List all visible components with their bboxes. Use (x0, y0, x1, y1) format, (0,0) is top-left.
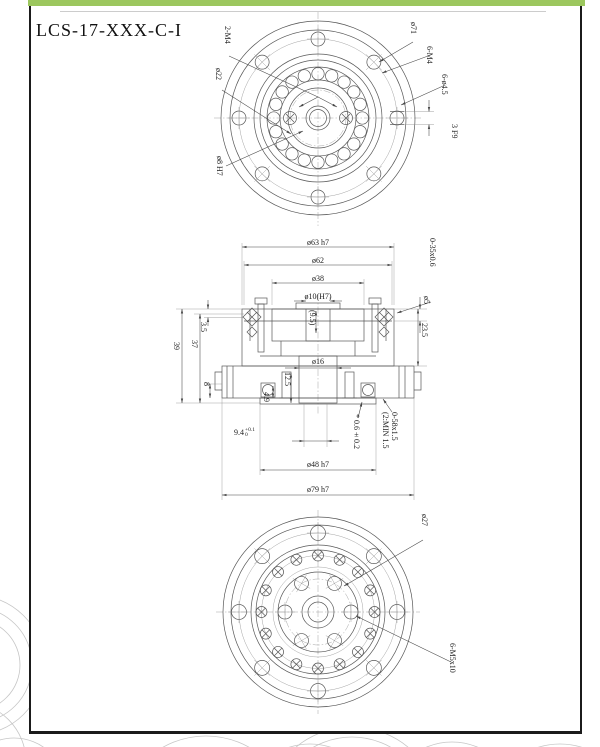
dim-label-oring-bot-1: 0-58x1.5 (390, 412, 399, 441)
dim-label-d5: ø5 (422, 296, 431, 304)
dim-label-2m4: 2-M4 (223, 26, 232, 44)
dim-label-35: 3.5 (199, 322, 208, 332)
dim-label-d48: ø48 h7 (278, 460, 358, 469)
dim-label-d8h7: ø8 H7 (215, 156, 224, 176)
dim-label-oring-top: 0-35x0.6 (428, 238, 437, 267)
dim-label-d62: ø62 (278, 256, 358, 265)
dim-label-d22: ø22 (214, 68, 223, 80)
dim-label-6d45: 6-ø4.5 (440, 74, 449, 95)
dim-label-49: 4.9 (262, 392, 271, 402)
dim-label-d10: ø10(H7) (278, 292, 358, 301)
top-view (214, 12, 443, 226)
bottom-view (216, 510, 451, 714)
dim-label-94: 9.4+0.10 (234, 428, 255, 438)
dim-label-d38: ø38 (278, 274, 358, 283)
dim-label-235: 23.5 (420, 323, 429, 337)
dim-label-3f9: 3 F9 (450, 124, 459, 138)
dim-label-d16: ø16 (278, 357, 358, 366)
dim-label-95: (9.5) (308, 310, 317, 325)
dim-label-39: 39 (172, 342, 181, 350)
dim-label-37: 37 (190, 340, 199, 348)
drawing-title: LCS-17-XXX-C-I (36, 20, 182, 41)
dim-label-d71: ø71 (409, 22, 418, 34)
dim-label-125: 12.5 (283, 372, 292, 386)
dim-label-6m4: 6-M4 (425, 46, 434, 64)
dim-label-d27: ø27 (420, 514, 429, 526)
cad-drawing (0, 0, 600, 747)
dim-label-6m5: 6-M5x10 (448, 643, 457, 673)
drawing-page: LCS-17-XXX-C-I 2-M4 ø22 ø8 H7 ø71 6-M4 6… (0, 0, 600, 747)
dim-label-d63: ø63 h7 (278, 238, 358, 247)
dim-label-oring-bot-2: (2:MIN 1.5 (381, 412, 390, 448)
dim-label-d79: ø79 h7 (278, 485, 358, 494)
dim-label-8: 8 (202, 382, 211, 386)
dim-label-seal: * 0.6±0.2 (352, 414, 361, 449)
